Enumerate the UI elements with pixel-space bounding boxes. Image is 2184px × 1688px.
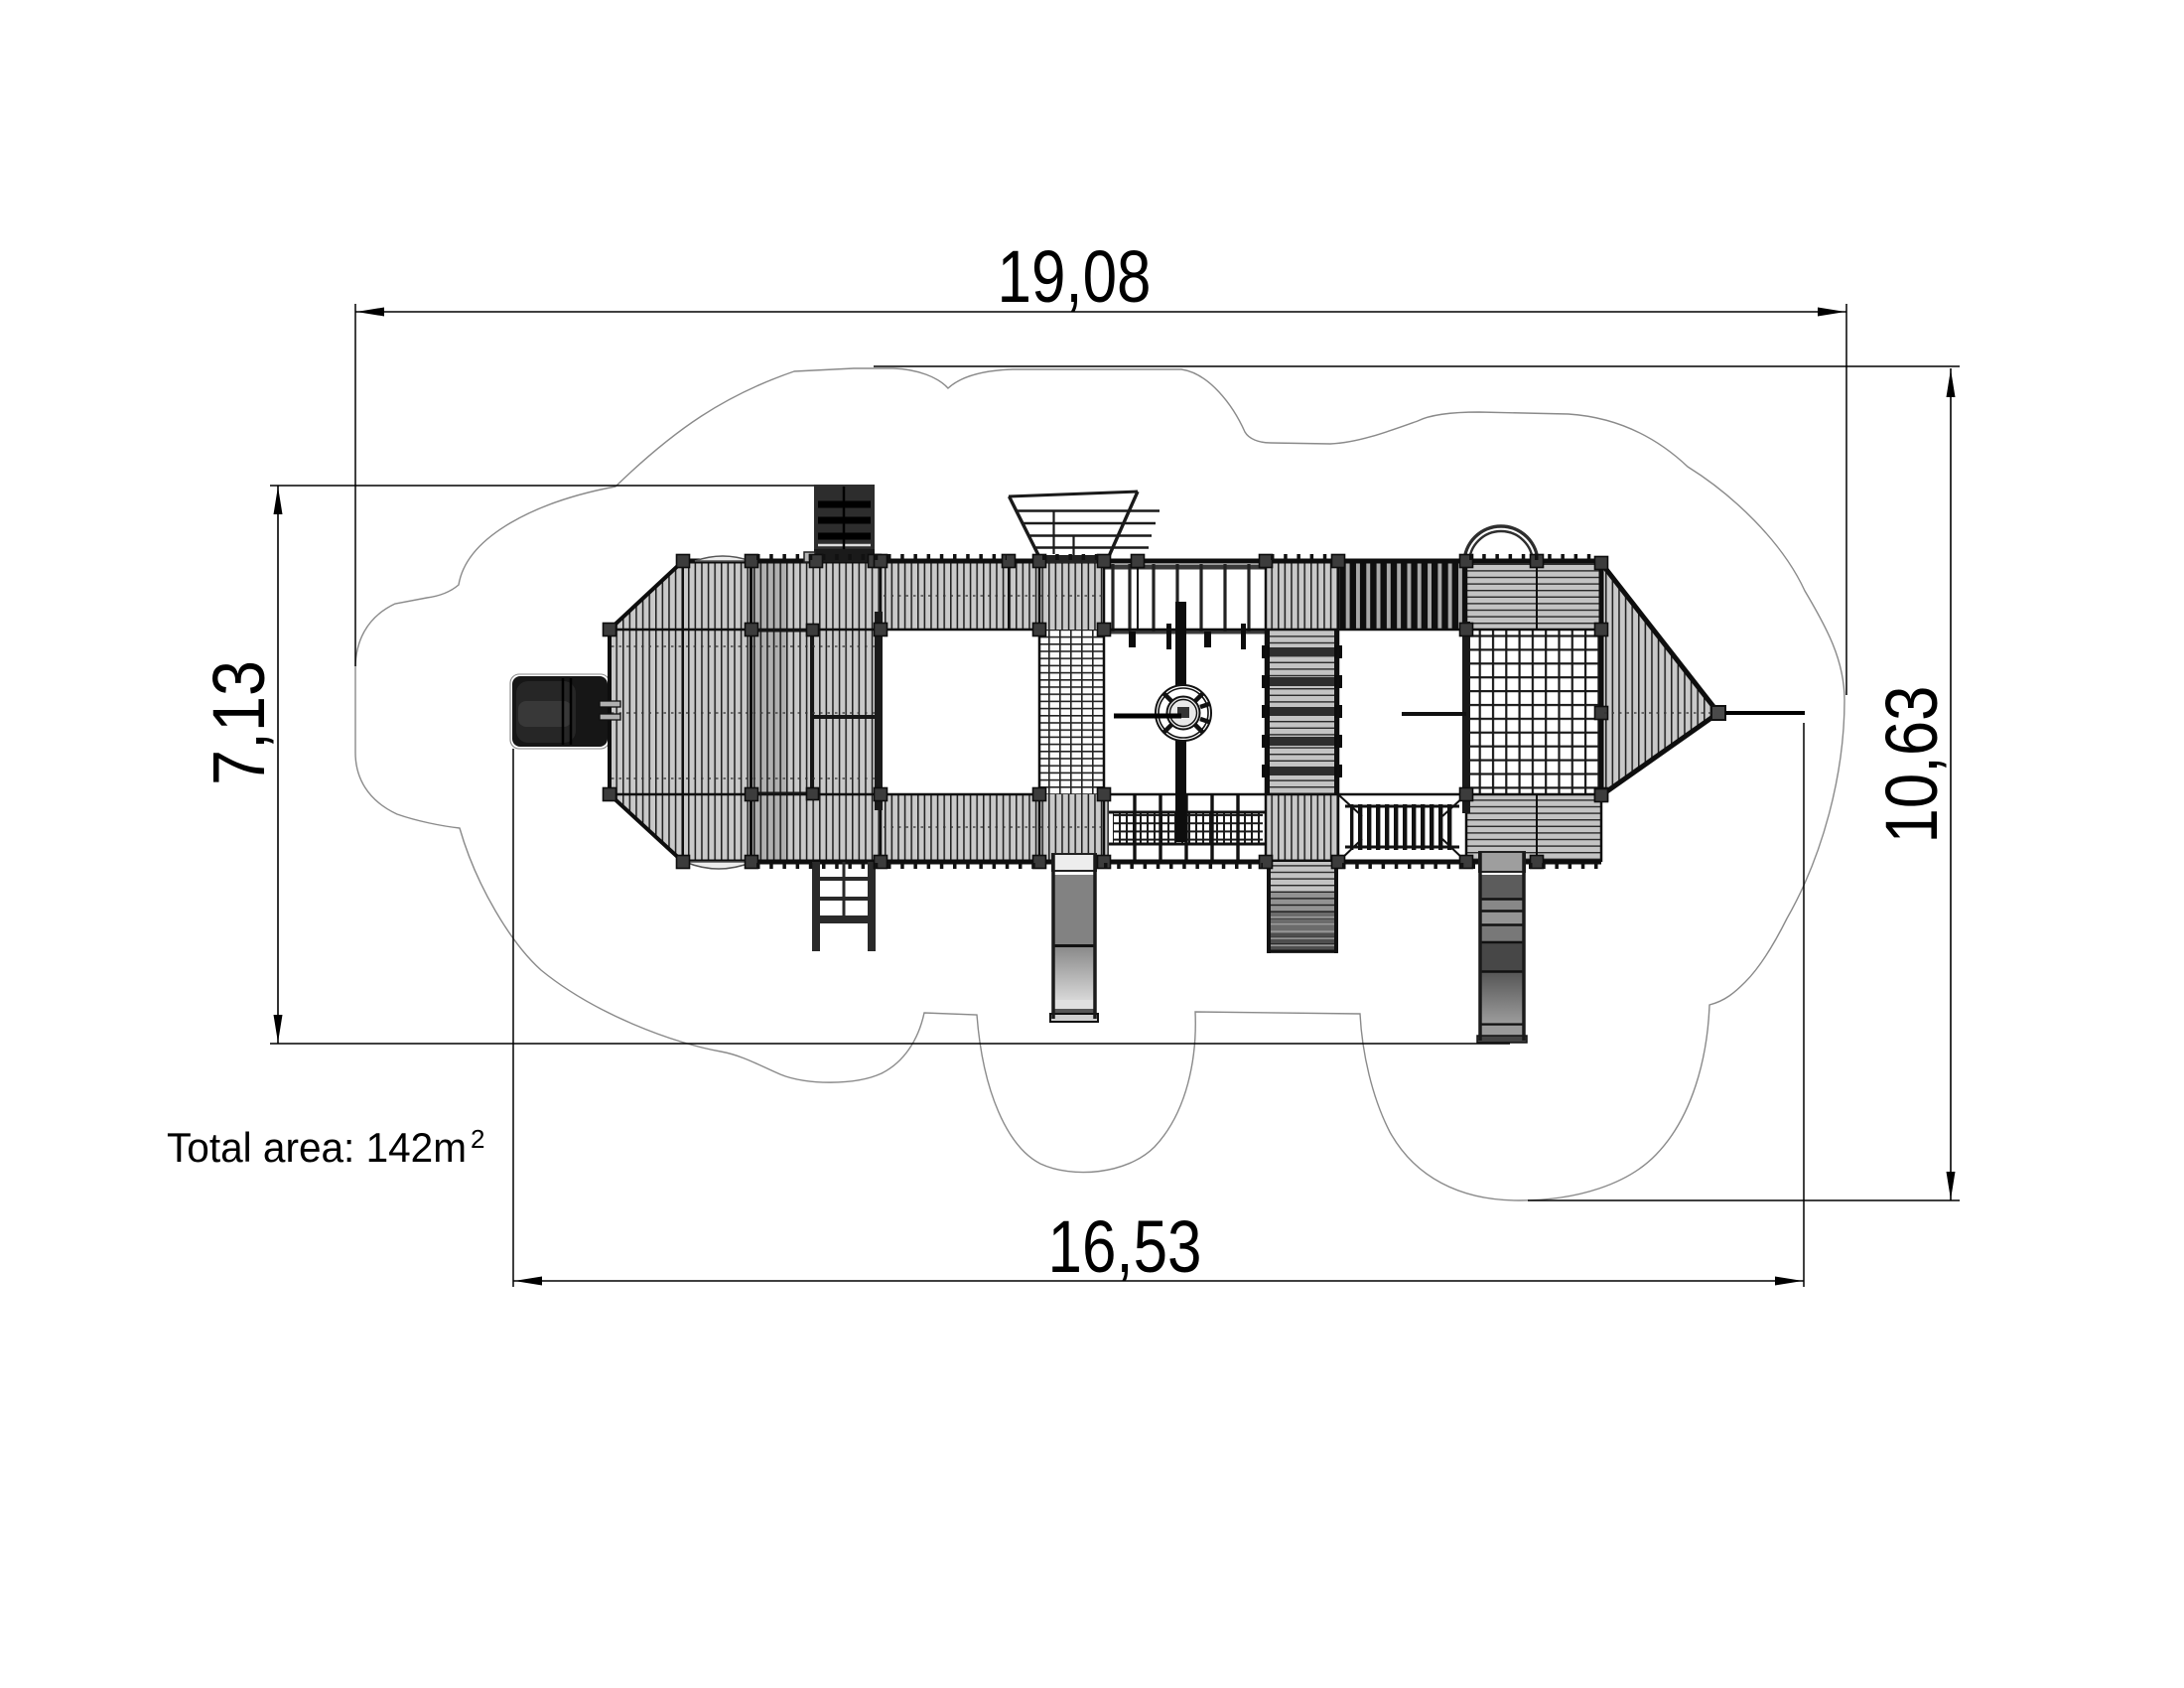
svg-text:19,08: 19,08: [998, 235, 1152, 318]
svg-text:16,53: 16,53: [1048, 1205, 1202, 1288]
svg-text:10,63: 10,63: [1870, 686, 1953, 844]
svg-text:7,13: 7,13: [198, 660, 280, 785]
svg-text:2: 2: [471, 1124, 484, 1154]
svg-text:Total area: 142m: Total area: 142m: [167, 1124, 467, 1171]
